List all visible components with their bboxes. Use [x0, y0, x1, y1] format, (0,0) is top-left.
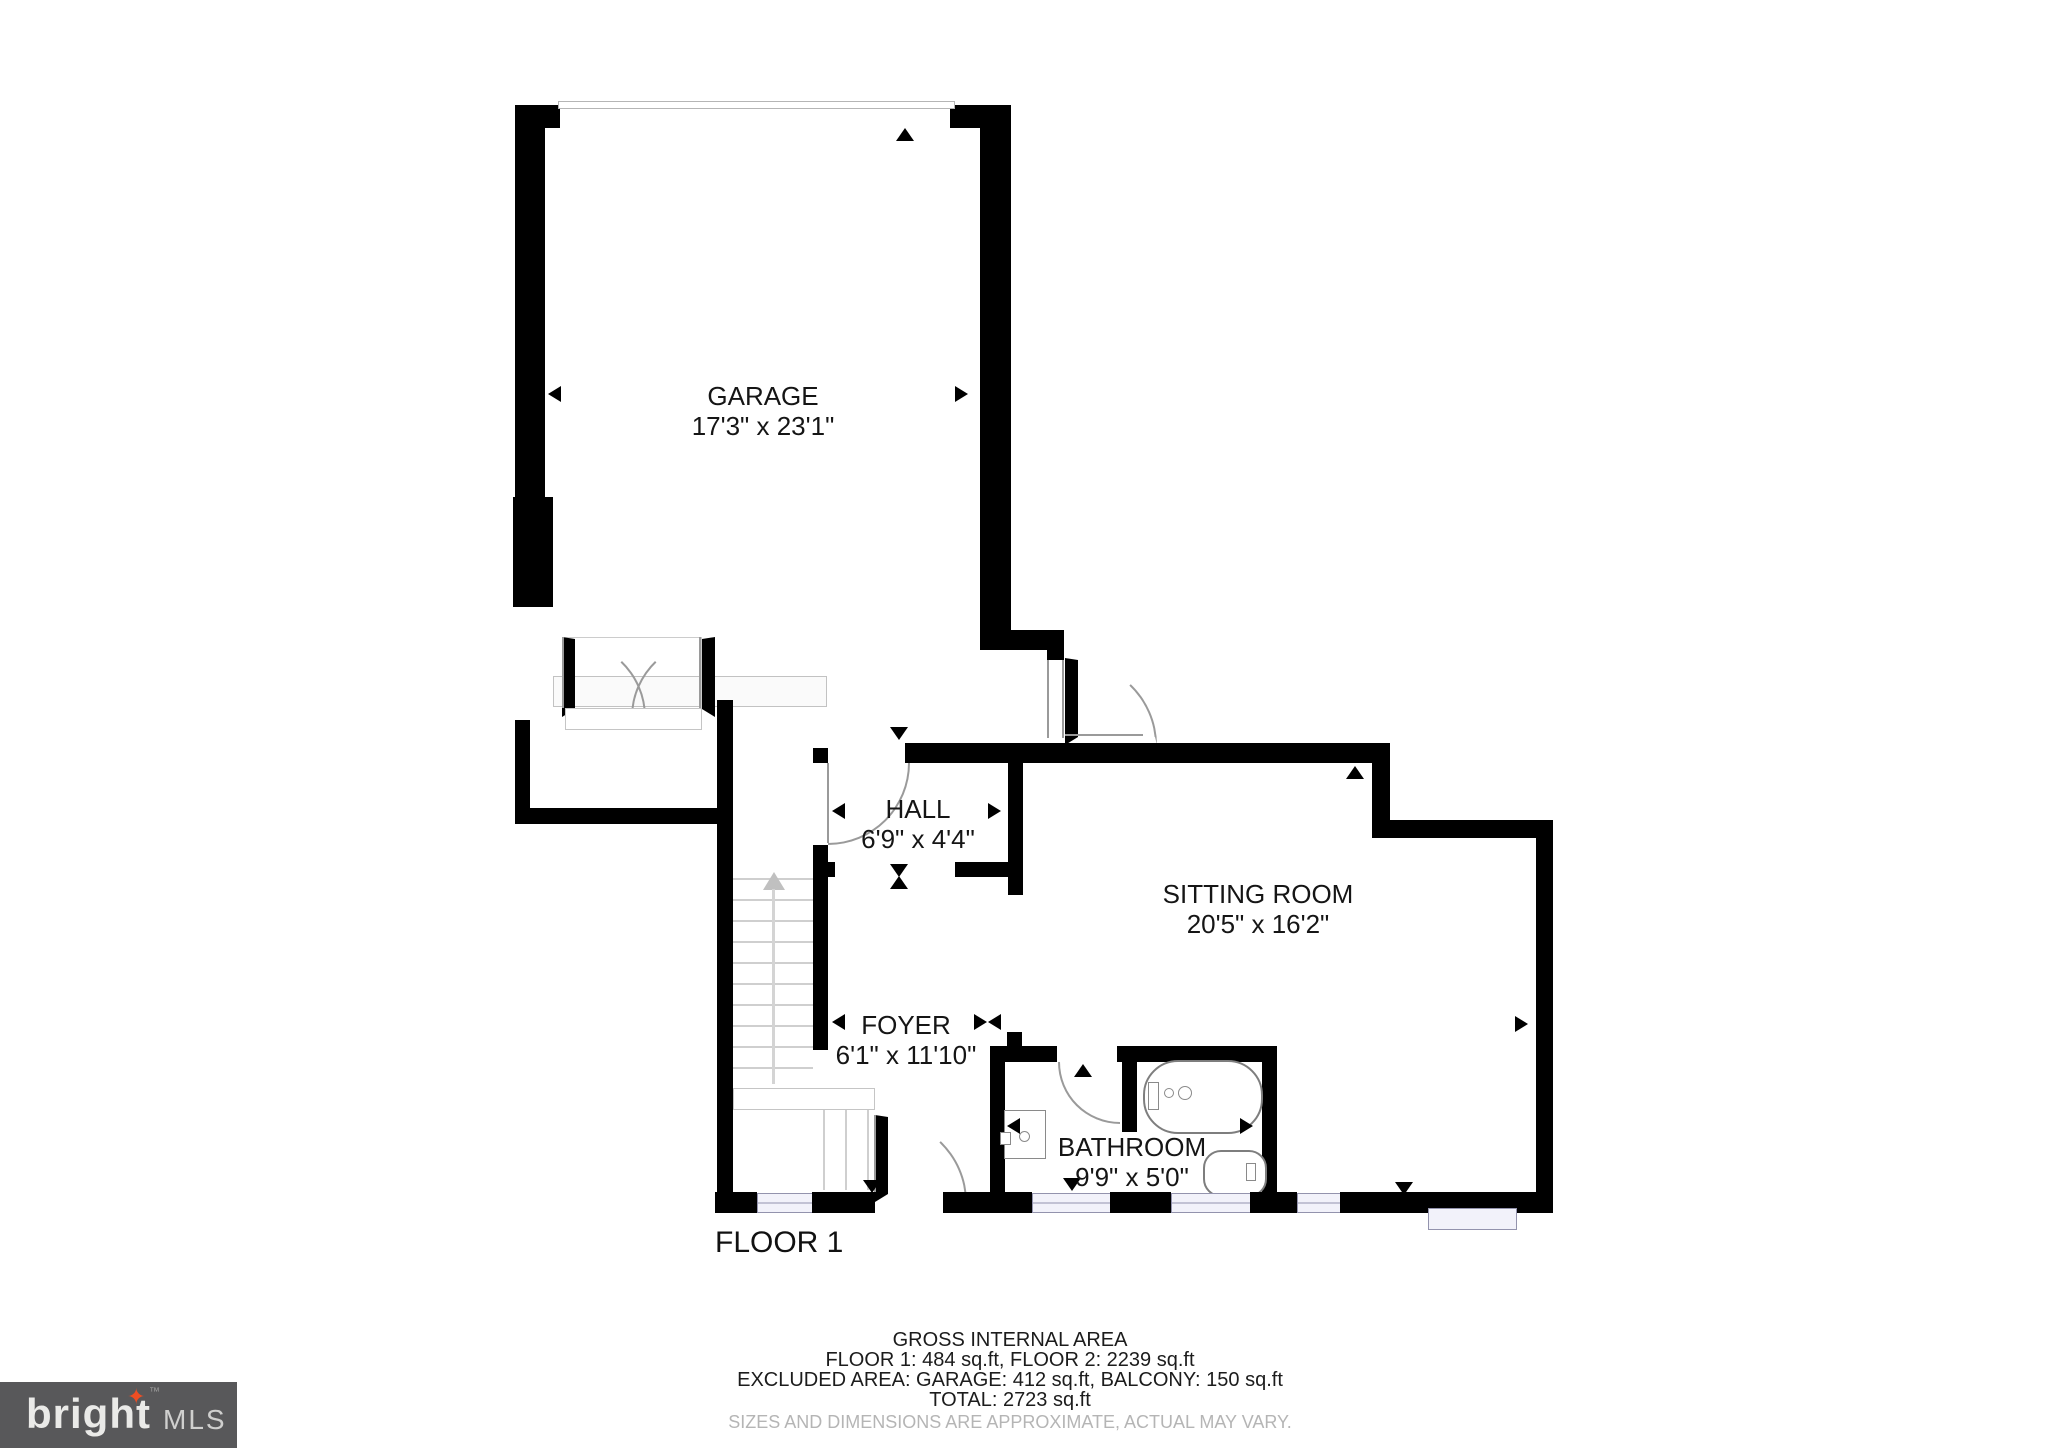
double-door-right-leaf [699, 637, 701, 708]
dim-arrow-up-sitting [1346, 766, 1364, 779]
star-icon: ✦ [127, 1384, 145, 1410]
dim-marker-foyer-right-b [988, 1014, 1001, 1030]
area-summary-excluded: EXCLUDED AREA: GARAGE: 412 sq.ft, BALCON… [737, 1370, 1283, 1390]
sitting-door-jamb-left [1047, 660, 1049, 738]
area-summary-title: GROSS INTERNAL AREA [893, 1330, 1128, 1350]
garage-door-line [558, 101, 955, 109]
toilet-icon [1203, 1150, 1267, 1197]
threshold-step [565, 708, 702, 730]
dim-arrow-left-hall [832, 803, 845, 819]
bright-mls-logo: bright ✦ ™ MLS [0, 1382, 237, 1448]
dim-arrow-down-foyer [863, 1180, 881, 1193]
wall-closet-bottom [515, 808, 733, 824]
window [1171, 1193, 1252, 1213]
room-label-garage: GARAGE 17'3" x 23'1" [692, 382, 835, 442]
window [1297, 1193, 1342, 1213]
room-label-sitting-room: SITTING ROOM 20'5" x 16'2" [1163, 880, 1354, 940]
wall-bottom-3 [943, 1192, 1032, 1213]
wall-garage-left-lower [513, 497, 553, 607]
wall-sitting-step-vert [1372, 763, 1390, 825]
stair-up-arrow [763, 872, 785, 890]
room-dims: 20'5" x 16'2" [1163, 910, 1354, 940]
dim-arrow-right-garage [955, 386, 968, 402]
wall-hall-door-stub [813, 748, 828, 763]
area-summary-total: TOTAL: 2723 sq.ft [929, 1390, 1091, 1410]
wall-sitting-step-horiz [1372, 820, 1553, 838]
room-name: HALL [861, 795, 975, 825]
room-name: BATHROOM [1058, 1133, 1206, 1163]
wall-bathroom-left [990, 1046, 1005, 1192]
wall-sitting-right [1536, 838, 1553, 1196]
window [757, 1193, 814, 1213]
dim-marker-hall-bottom-up [890, 876, 908, 889]
stair-tread-vertical [867, 1110, 869, 1190]
room-dims: 6'1" x 11'10" [836, 1041, 977, 1071]
room-label-bathroom: BATHROOM 9'9" x 5'0" [1058, 1133, 1206, 1193]
room-name: GARAGE [692, 382, 835, 412]
wall-garage-right [980, 105, 1011, 650]
dim-arrow-right-sitting [1515, 1016, 1528, 1032]
window-bay [1428, 1208, 1517, 1230]
stair-up-arrow-stem [772, 889, 775, 1084]
dim-arrow-up-bathroom [1074, 1064, 1092, 1077]
wall-bottom-2 [812, 1192, 875, 1213]
wall-bottom-5 [1250, 1192, 1297, 1213]
wall-door-stub [1047, 650, 1064, 660]
room-dims: 6'9" x 4'4" [861, 825, 975, 855]
sitting-door-jamb-right [1062, 660, 1064, 738]
wall-bathroom-partition [1122, 1057, 1137, 1132]
room-label-hall: HALL 6'9" x 4'4" [861, 795, 975, 855]
dim-arrow-right-hall [988, 803, 1001, 819]
stair-tread-vertical [845, 1110, 847, 1190]
dim-arrow-down-sitting [1395, 1182, 1413, 1195]
area-summary-floors: FLOOR 1: 484 sq.ft, FLOOR 2: 2239 sq.ft [825, 1350, 1194, 1370]
room-label-foyer: FOYER 6'1" x 11'10" [836, 1011, 977, 1071]
dim-arrow-up-garage [896, 128, 914, 141]
dim-arrow-right-bathroom [1240, 1118, 1253, 1134]
wall-stair-left [717, 700, 733, 1212]
room-dims: 9'9" x 5'0" [1058, 1163, 1206, 1193]
room-dims: 17'3" x 23'1" [692, 412, 835, 442]
room-name: FOYER [836, 1011, 977, 1041]
toilet-tank [1246, 1163, 1256, 1181]
wall-bottom-4 [1110, 1192, 1171, 1213]
stair-landing-step [733, 1088, 875, 1110]
hall-door-leaf [827, 763, 829, 843]
sitting-door-arc [1065, 658, 1157, 745]
bathtub-drain [1164, 1088, 1174, 1098]
floor-plan-canvas: GARAGE 17'3" x 23'1" HALL 6'9" x 4'4" SI… [0, 0, 2048, 1448]
dim-arrow-left-garage [548, 386, 561, 402]
double-door-left-leaf [562, 637, 564, 708]
bathtub-overflow [1178, 1086, 1192, 1100]
sitting-door-leaf [1065, 734, 1143, 736]
floor-label: FLOOR 1 [715, 1226, 843, 1260]
wall-hall-bottom [955, 862, 1023, 877]
foyer-door-arc [875, 1115, 967, 1202]
dim-arrow-left-bathroom [1007, 1118, 1020, 1134]
wall-bottom-1 [715, 1192, 757, 1213]
wall-hall-bottom-stub [813, 862, 835, 877]
room-name: SITTING ROOM [1163, 880, 1354, 910]
window [1032, 1193, 1112, 1213]
trademark-symbol: ™ [149, 1386, 160, 1398]
sink-basin [1019, 1131, 1030, 1142]
logo-suffix-text: MLS [163, 1404, 227, 1436]
wall-jog-horizontal [980, 630, 1064, 650]
area-summary-disclaimer: SIZES AND DIMENSIONS ARE APPROXIMATE, AC… [728, 1412, 1292, 1433]
stair-tread-vertical [823, 1110, 825, 1190]
dim-arrow-down-hall-top [890, 727, 908, 740]
wall-sitting-top [905, 743, 1390, 763]
bathtub-faucet [1148, 1082, 1159, 1110]
